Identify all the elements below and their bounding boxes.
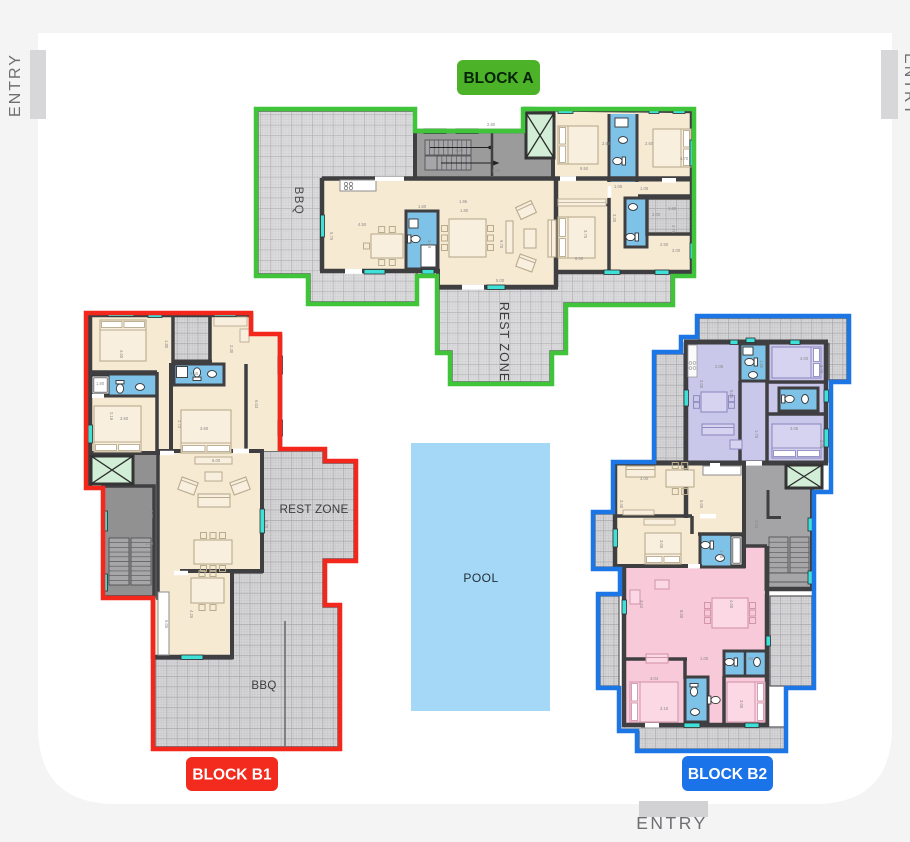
- svg-text:4.00: 4.00: [729, 600, 734, 609]
- svg-text:BLOCK B1: BLOCK B1: [192, 767, 272, 784]
- svg-text:1.60: 1.60: [745, 656, 754, 661]
- svg-text:1.05: 1.05: [700, 656, 709, 661]
- svg-text:3.00: 3.00: [800, 356, 809, 361]
- svg-text:1.80: 1.80: [759, 360, 764, 369]
- svg-text:POOL: POOL: [463, 571, 498, 585]
- svg-text:3.15: 3.15: [660, 706, 669, 711]
- svg-text:1.08: 1.08: [640, 186, 649, 191]
- svg-text:6.03: 6.03: [254, 400, 259, 409]
- svg-text:REST ZONE: REST ZONE: [497, 302, 511, 382]
- svg-text:8.00: 8.00: [679, 610, 684, 619]
- svg-text:2.40: 2.40: [492, 168, 501, 173]
- svg-text:ENTRY: ENTRY: [901, 53, 910, 117]
- svg-text:2.80: 2.80: [487, 122, 496, 127]
- svg-text:3.00: 3.00: [739, 700, 744, 709]
- svg-text:3.05: 3.05: [149, 510, 154, 519]
- svg-text:1.70: 1.70: [754, 430, 759, 439]
- svg-text:1.05: 1.05: [614, 184, 623, 189]
- svg-text:4.25: 4.25: [189, 610, 194, 619]
- svg-text:2.60: 2.60: [602, 141, 611, 146]
- svg-text:1.95: 1.95: [459, 199, 468, 204]
- svg-text:2.05: 2.05: [715, 364, 724, 369]
- svg-text:3.20: 3.20: [612, 214, 617, 223]
- svg-text:4.50: 4.50: [358, 222, 367, 227]
- svg-text:9.70: 9.70: [499, 240, 504, 249]
- svg-text:2.19: 2.19: [109, 412, 114, 421]
- svg-text:3.75: 3.75: [583, 230, 588, 239]
- svg-text:3.70: 3.70: [819, 365, 824, 374]
- svg-text:3.40: 3.40: [619, 500, 624, 509]
- svg-text:5.05: 5.05: [164, 620, 169, 629]
- svg-text:3.00: 3.00: [672, 248, 681, 253]
- svg-text:1.60: 1.60: [719, 550, 724, 559]
- svg-text:2.00: 2.00: [652, 212, 661, 217]
- svg-text:BLOCK B2: BLOCK B2: [688, 766, 767, 783]
- svg-text:3.05: 3.05: [790, 426, 799, 431]
- svg-text:2.60: 2.60: [645, 141, 654, 146]
- svg-text:3.04: 3.04: [639, 600, 644, 609]
- svg-text:3.00: 3.00: [640, 476, 649, 481]
- svg-text:5.00: 5.00: [729, 390, 734, 399]
- svg-text:1.80: 1.80: [164, 340, 169, 349]
- svg-text:2.70: 2.70: [819, 440, 824, 449]
- svg-text:5.00: 5.00: [496, 278, 505, 283]
- svg-text:5.05: 5.05: [699, 500, 704, 509]
- svg-text:2.75: 2.75: [671, 225, 676, 234]
- svg-text:3.05: 3.05: [754, 520, 759, 529]
- svg-text:1.60: 1.60: [418, 204, 427, 209]
- svg-text:2.72: 2.72: [177, 420, 182, 429]
- svg-text:2.50: 2.50: [660, 242, 669, 247]
- svg-text:3.60: 3.60: [200, 426, 209, 431]
- svg-text:4.05: 4.05: [119, 350, 124, 359]
- svg-text:3.60: 3.60: [455, 148, 464, 153]
- svg-text:6.00: 6.00: [212, 458, 221, 463]
- svg-text:2.45: 2.45: [190, 371, 199, 376]
- svg-text:1.00: 1.00: [145, 541, 154, 546]
- svg-text:3.00: 3.00: [699, 380, 704, 389]
- svg-text:3.60: 3.60: [120, 416, 129, 421]
- svg-text:2.30: 2.30: [229, 345, 234, 354]
- svg-text:1.80: 1.80: [96, 381, 105, 386]
- svg-text:3.04: 3.04: [650, 676, 659, 681]
- svg-text:8.00: 8.00: [575, 256, 584, 261]
- svg-text:1.60: 1.60: [668, 206, 677, 211]
- svg-text:4.70: 4.70: [680, 156, 689, 161]
- svg-text:ENTRY: ENTRY: [7, 53, 24, 117]
- svg-text:6.70: 6.70: [264, 520, 269, 529]
- svg-text:BBQ: BBQ: [251, 680, 276, 692]
- svg-text:5.75: 5.75: [329, 232, 334, 241]
- svg-text:3.08: 3.08: [427, 240, 432, 249]
- svg-text:3.05: 3.05: [659, 540, 664, 549]
- svg-text:REST ZONE: REST ZONE: [279, 502, 348, 516]
- svg-text:1.80: 1.80: [460, 208, 469, 213]
- svg-text:9.50: 9.50: [580, 166, 589, 171]
- svg-text:ENTRY: ENTRY: [636, 813, 708, 833]
- svg-text:BBQ: BBQ: [292, 187, 304, 216]
- svg-text:BLOCK A: BLOCK A: [463, 70, 533, 87]
